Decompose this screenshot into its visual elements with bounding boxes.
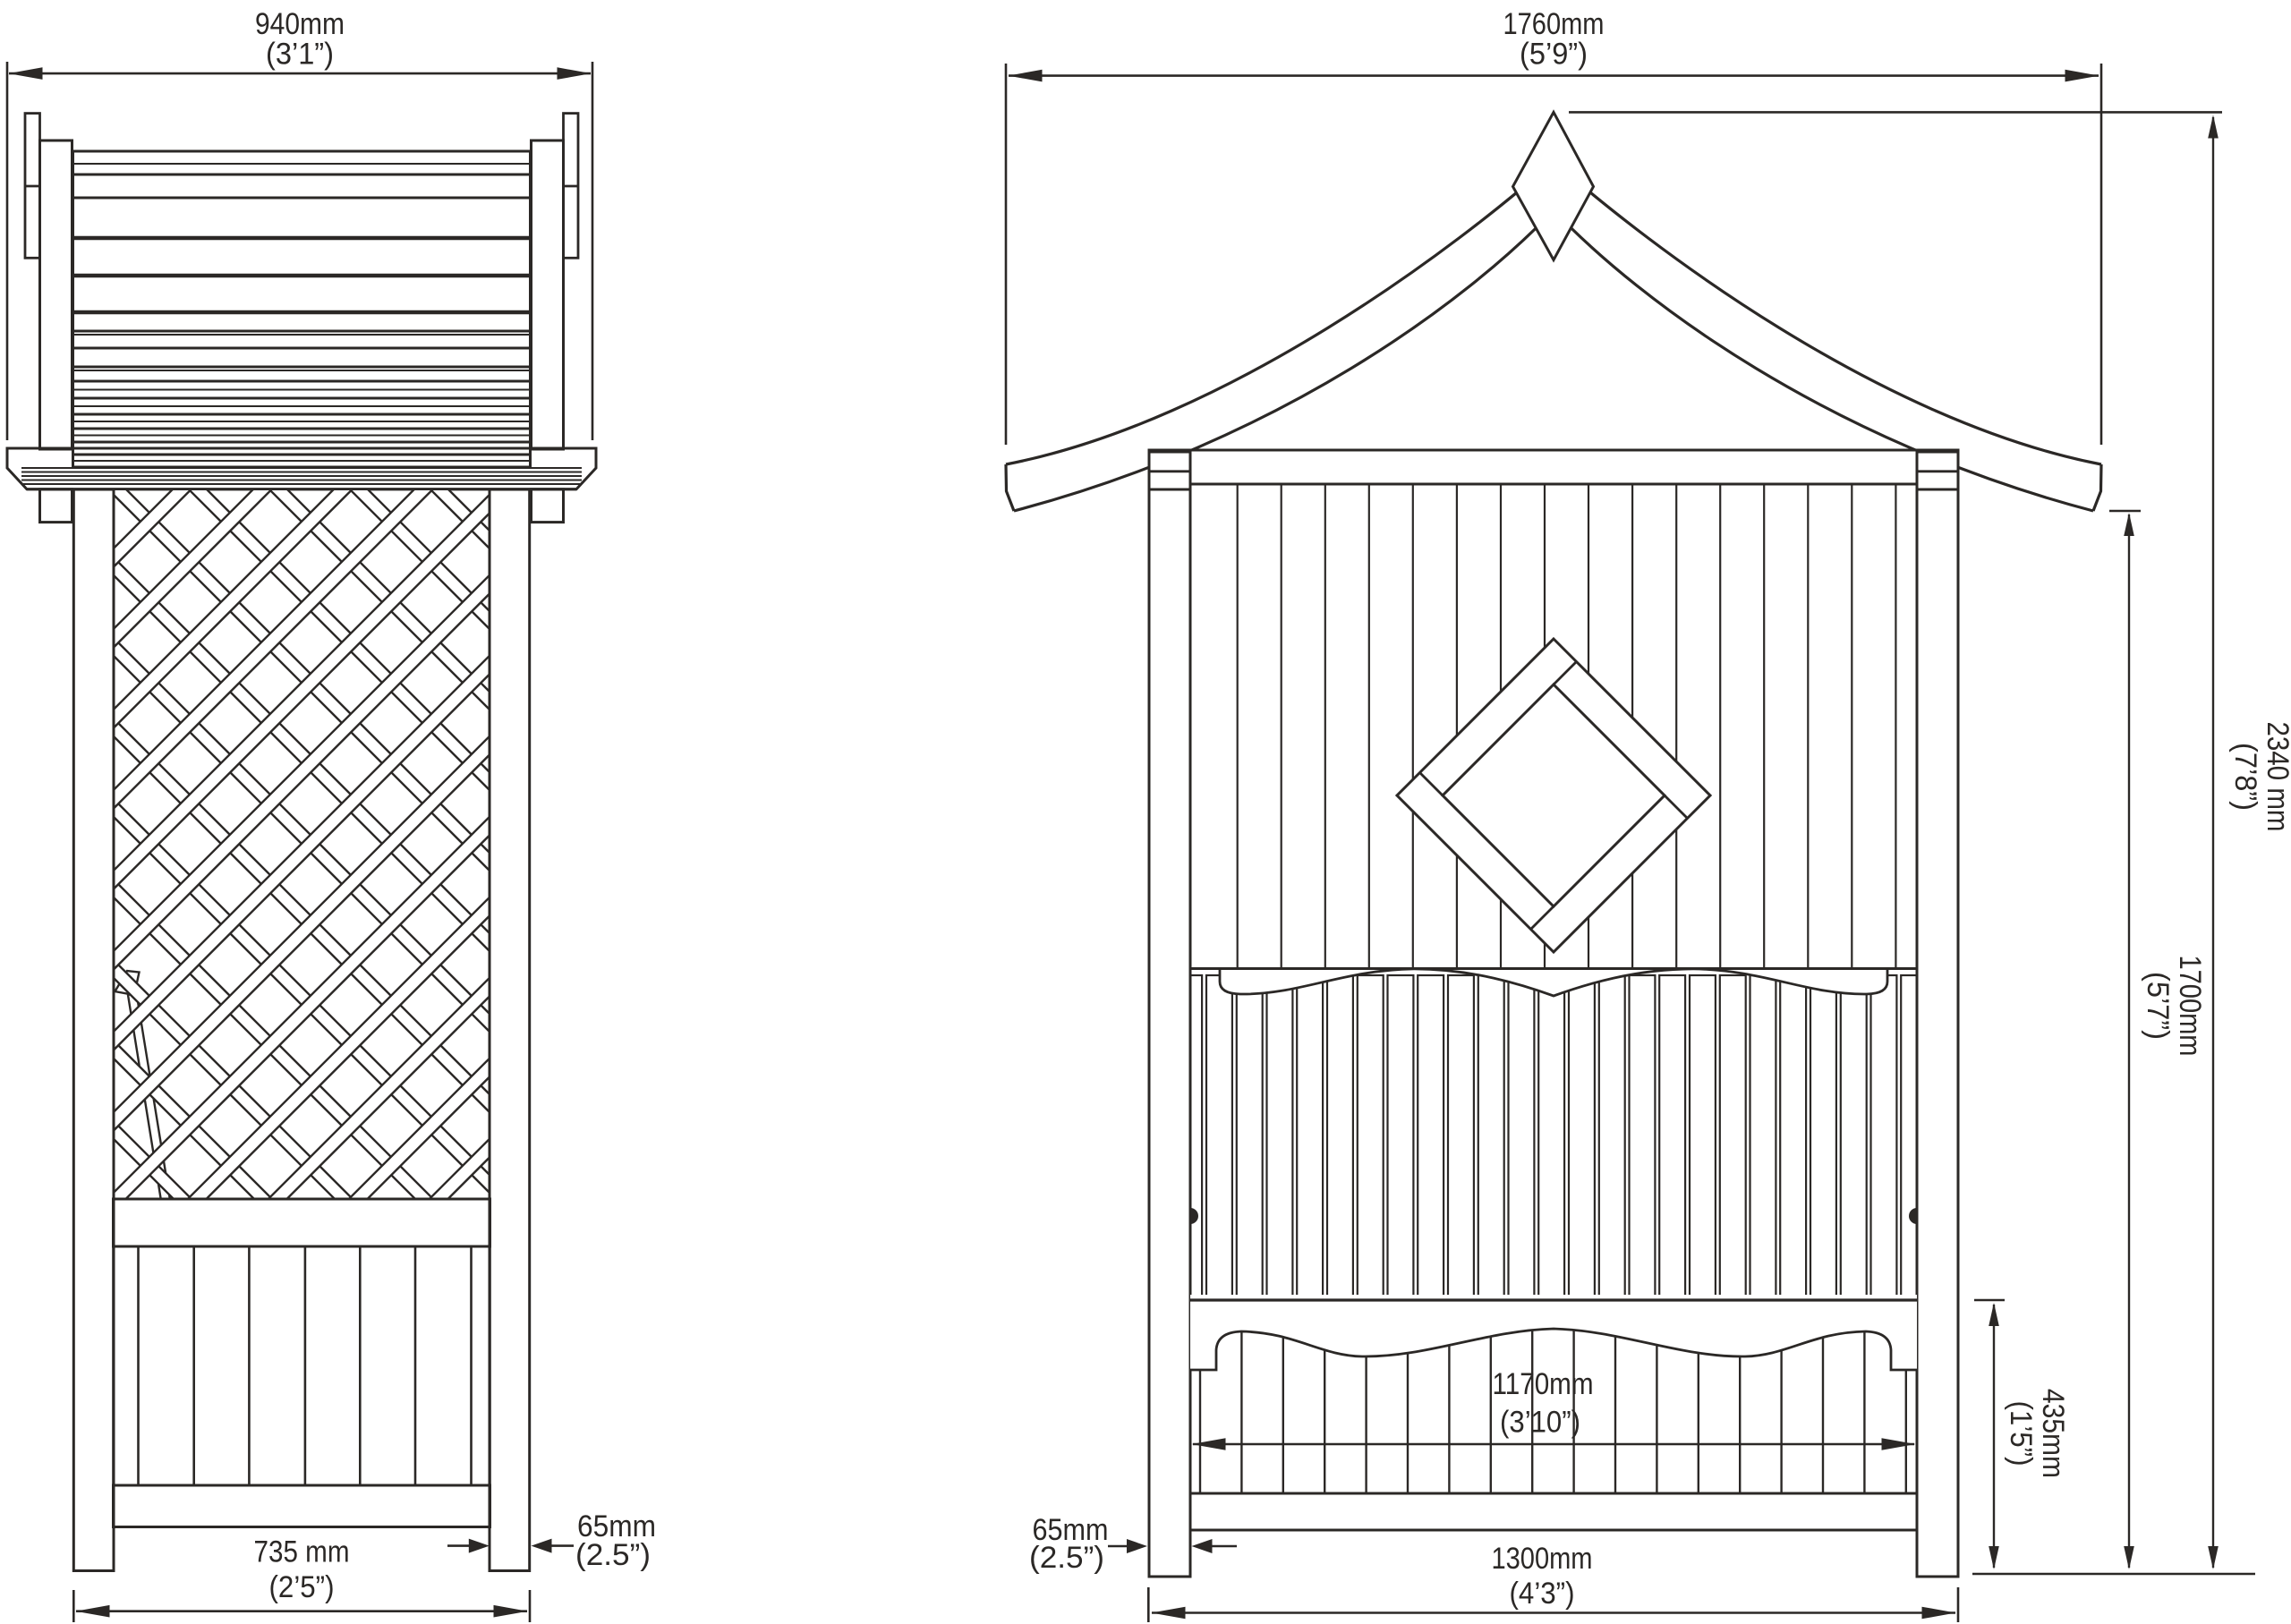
svg-text:1700mm: 1700mm bbox=[2173, 956, 2207, 1057]
svg-text:2340 mm: 2340 mm bbox=[2261, 722, 2291, 832]
svg-text:(5’7”): (5’7”) bbox=[2141, 972, 2175, 1040]
svg-text:(2’5”): (2’5”) bbox=[269, 1570, 335, 1604]
svg-text:(5’9”): (5’9”) bbox=[1520, 38, 1588, 72]
svg-text:1170mm: 1170mm bbox=[1493, 1367, 1594, 1401]
svg-text:1760mm: 1760mm bbox=[1503, 7, 1605, 41]
svg-text:(3’10”): (3’10”) bbox=[1500, 1405, 1580, 1439]
svg-text:(2.5”): (2.5”) bbox=[1029, 1541, 1104, 1575]
svg-text:1300mm: 1300mm bbox=[1492, 1542, 1593, 1576]
svg-text:(7’8”): (7’8”) bbox=[2228, 743, 2262, 811]
svg-text:(3’1”): (3’1”) bbox=[266, 38, 334, 72]
svg-text:(4’3”): (4’3”) bbox=[1510, 1577, 1575, 1611]
svg-text:735 mm: 735 mm bbox=[254, 1535, 350, 1569]
svg-text:(1’5”): (1’5”) bbox=[2004, 1401, 2038, 1467]
svg-text:(2.5”): (2.5”) bbox=[575, 1538, 651, 1572]
svg-text:435mm: 435mm bbox=[2036, 1389, 2070, 1478]
svg-text:940mm: 940mm bbox=[255, 7, 345, 41]
